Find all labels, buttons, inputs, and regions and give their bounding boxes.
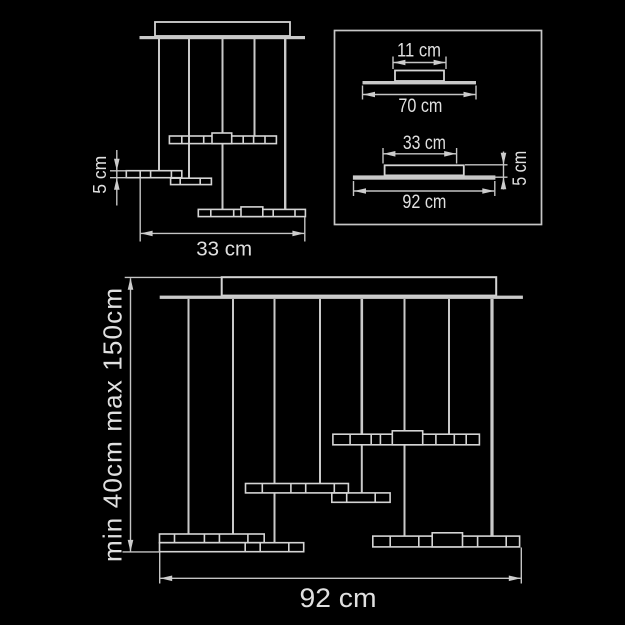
svg-text:70 cm: 70 cm [398, 95, 442, 117]
svg-text:5 cm: 5 cm [509, 151, 531, 186]
svg-text:5 cm: 5 cm [89, 156, 110, 194]
svg-text:33 cm: 33 cm [196, 238, 252, 261]
svg-text:92 cm: 92 cm [300, 583, 377, 613]
svg-text:33 cm: 33 cm [403, 132, 446, 154]
svg-text:min 40cm max 150cm: min 40cm max 150cm [98, 288, 128, 562]
svg-text:92 cm: 92 cm [402, 191, 446, 213]
svg-text:11 cm: 11 cm [397, 40, 441, 62]
